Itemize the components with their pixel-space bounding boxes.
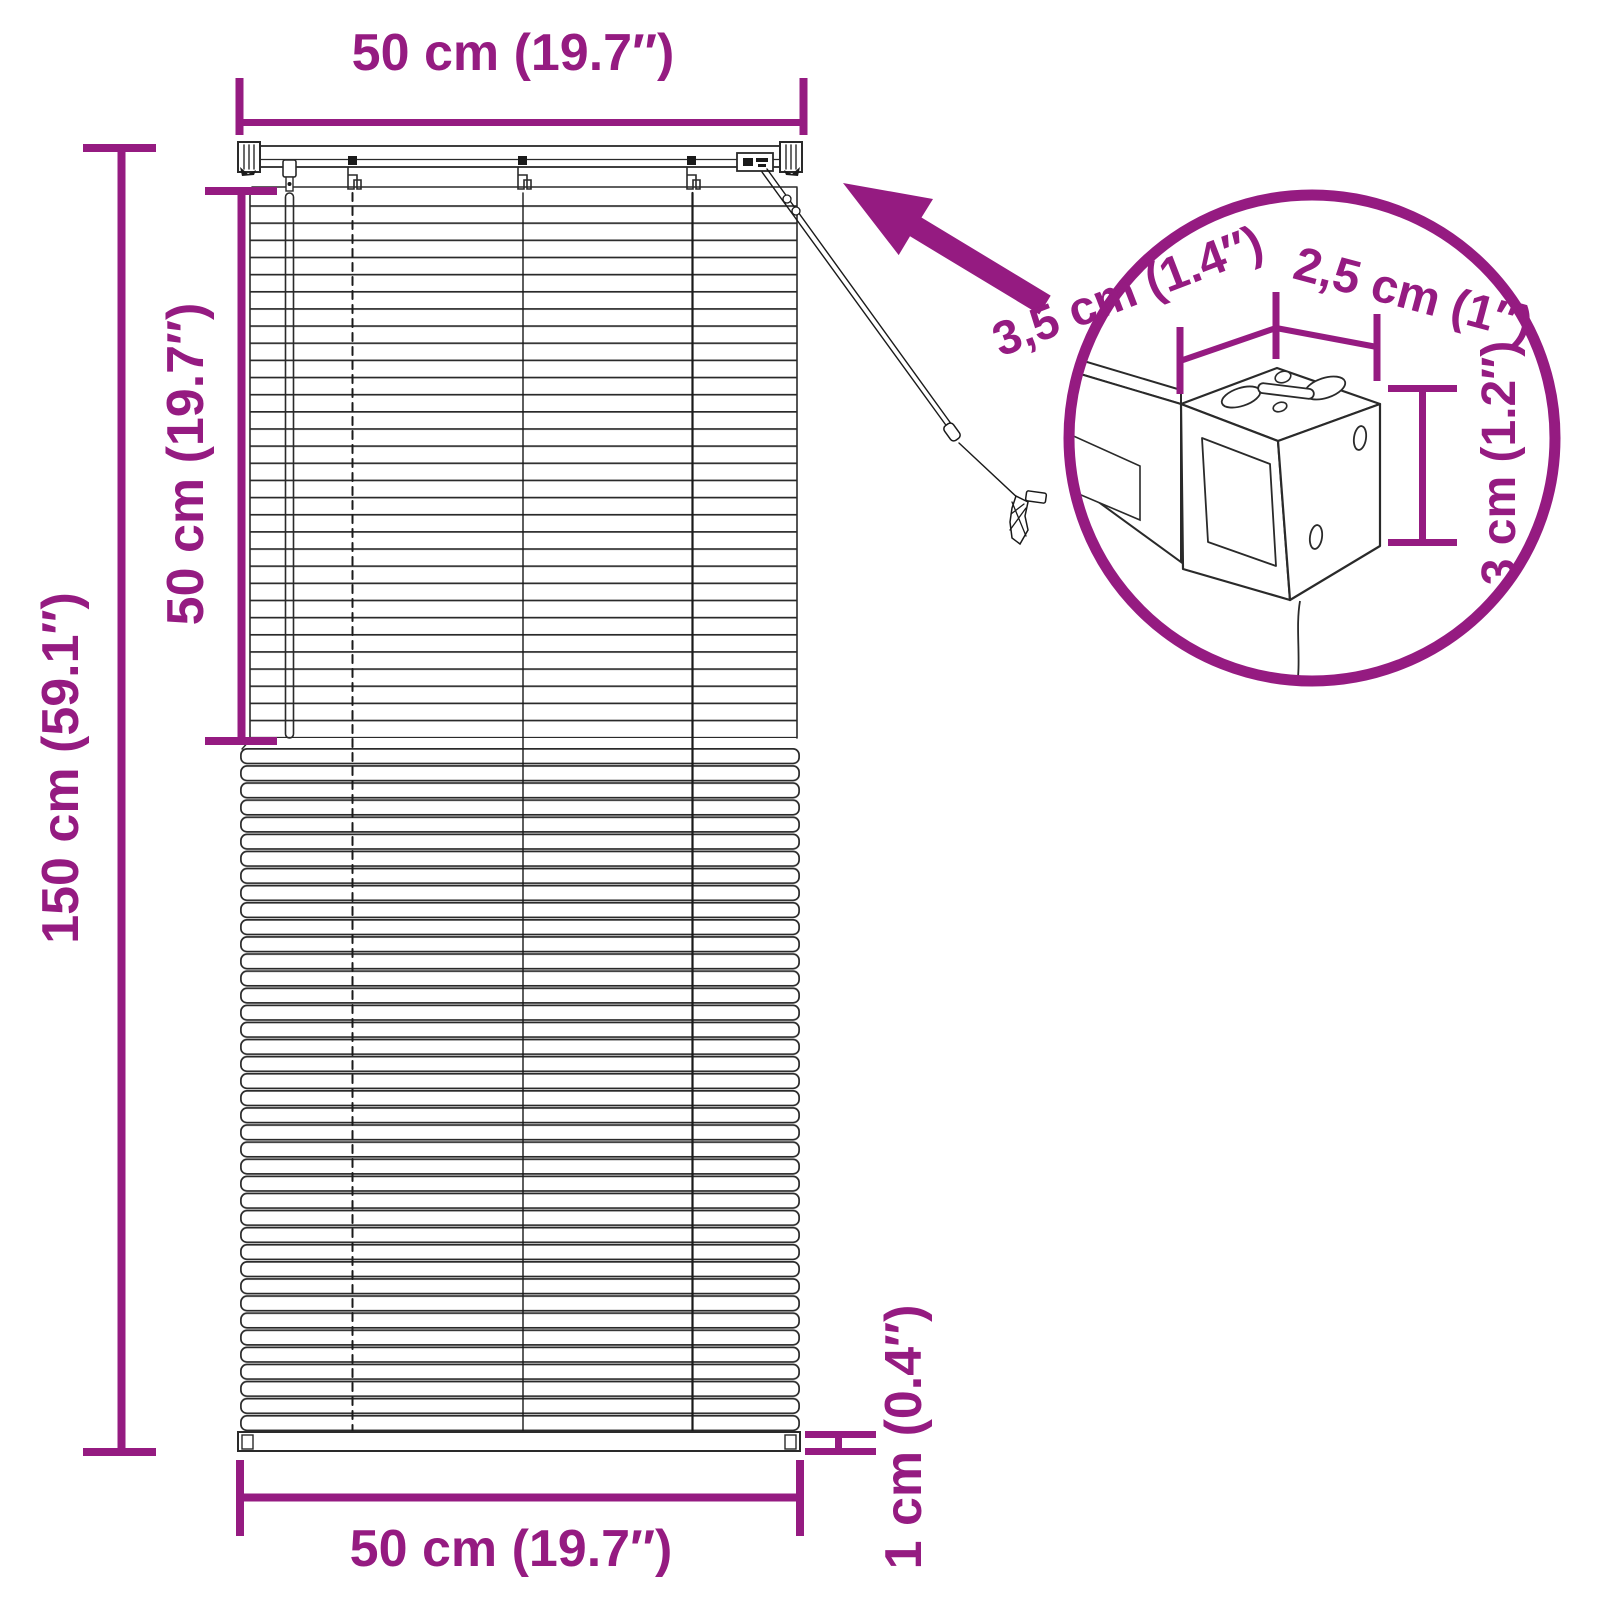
dimension-top-width bbox=[236, 78, 807, 135]
cord-lock bbox=[737, 153, 773, 171]
diagram-canvas: 50 cm (19.7″) 150 cm (59.1″) 50 cm (19.7… bbox=[0, 0, 1600, 1600]
dimension-left-height bbox=[83, 145, 156, 1456]
bottom-rail bbox=[238, 1432, 800, 1451]
mounting-bracket bbox=[1181, 368, 1380, 694]
dimension-bracket-height bbox=[1388, 388, 1457, 543]
headrail-right-endcap bbox=[780, 142, 802, 176]
cord-tassel bbox=[1010, 491, 1047, 544]
bracket-detail-drawing bbox=[1060, 292, 1457, 694]
closed-slat-section bbox=[240, 740, 800, 1432]
label-bracket-height: 3 cm (1.2″) bbox=[1476, 341, 1524, 585]
label-left-height: 150 cm (59.1″) bbox=[35, 592, 87, 944]
label-bottom-rail-height: 1 cm (0.4″) bbox=[878, 1305, 930, 1570]
label-bottom-width: 50 cm (19.7″) bbox=[350, 1523, 673, 1575]
zoom-arrow-icon bbox=[843, 183, 1051, 314]
dimension-bottom-rail bbox=[805, 1434, 876, 1452]
label-open-height: 50 cm (19.7″) bbox=[160, 303, 212, 626]
blind bbox=[238, 142, 1047, 1451]
headrail-left-endcap bbox=[238, 142, 260, 176]
blind-line-drawing bbox=[0, 0, 1600, 1600]
label-top-width: 50 cm (19.7″) bbox=[352, 27, 675, 79]
